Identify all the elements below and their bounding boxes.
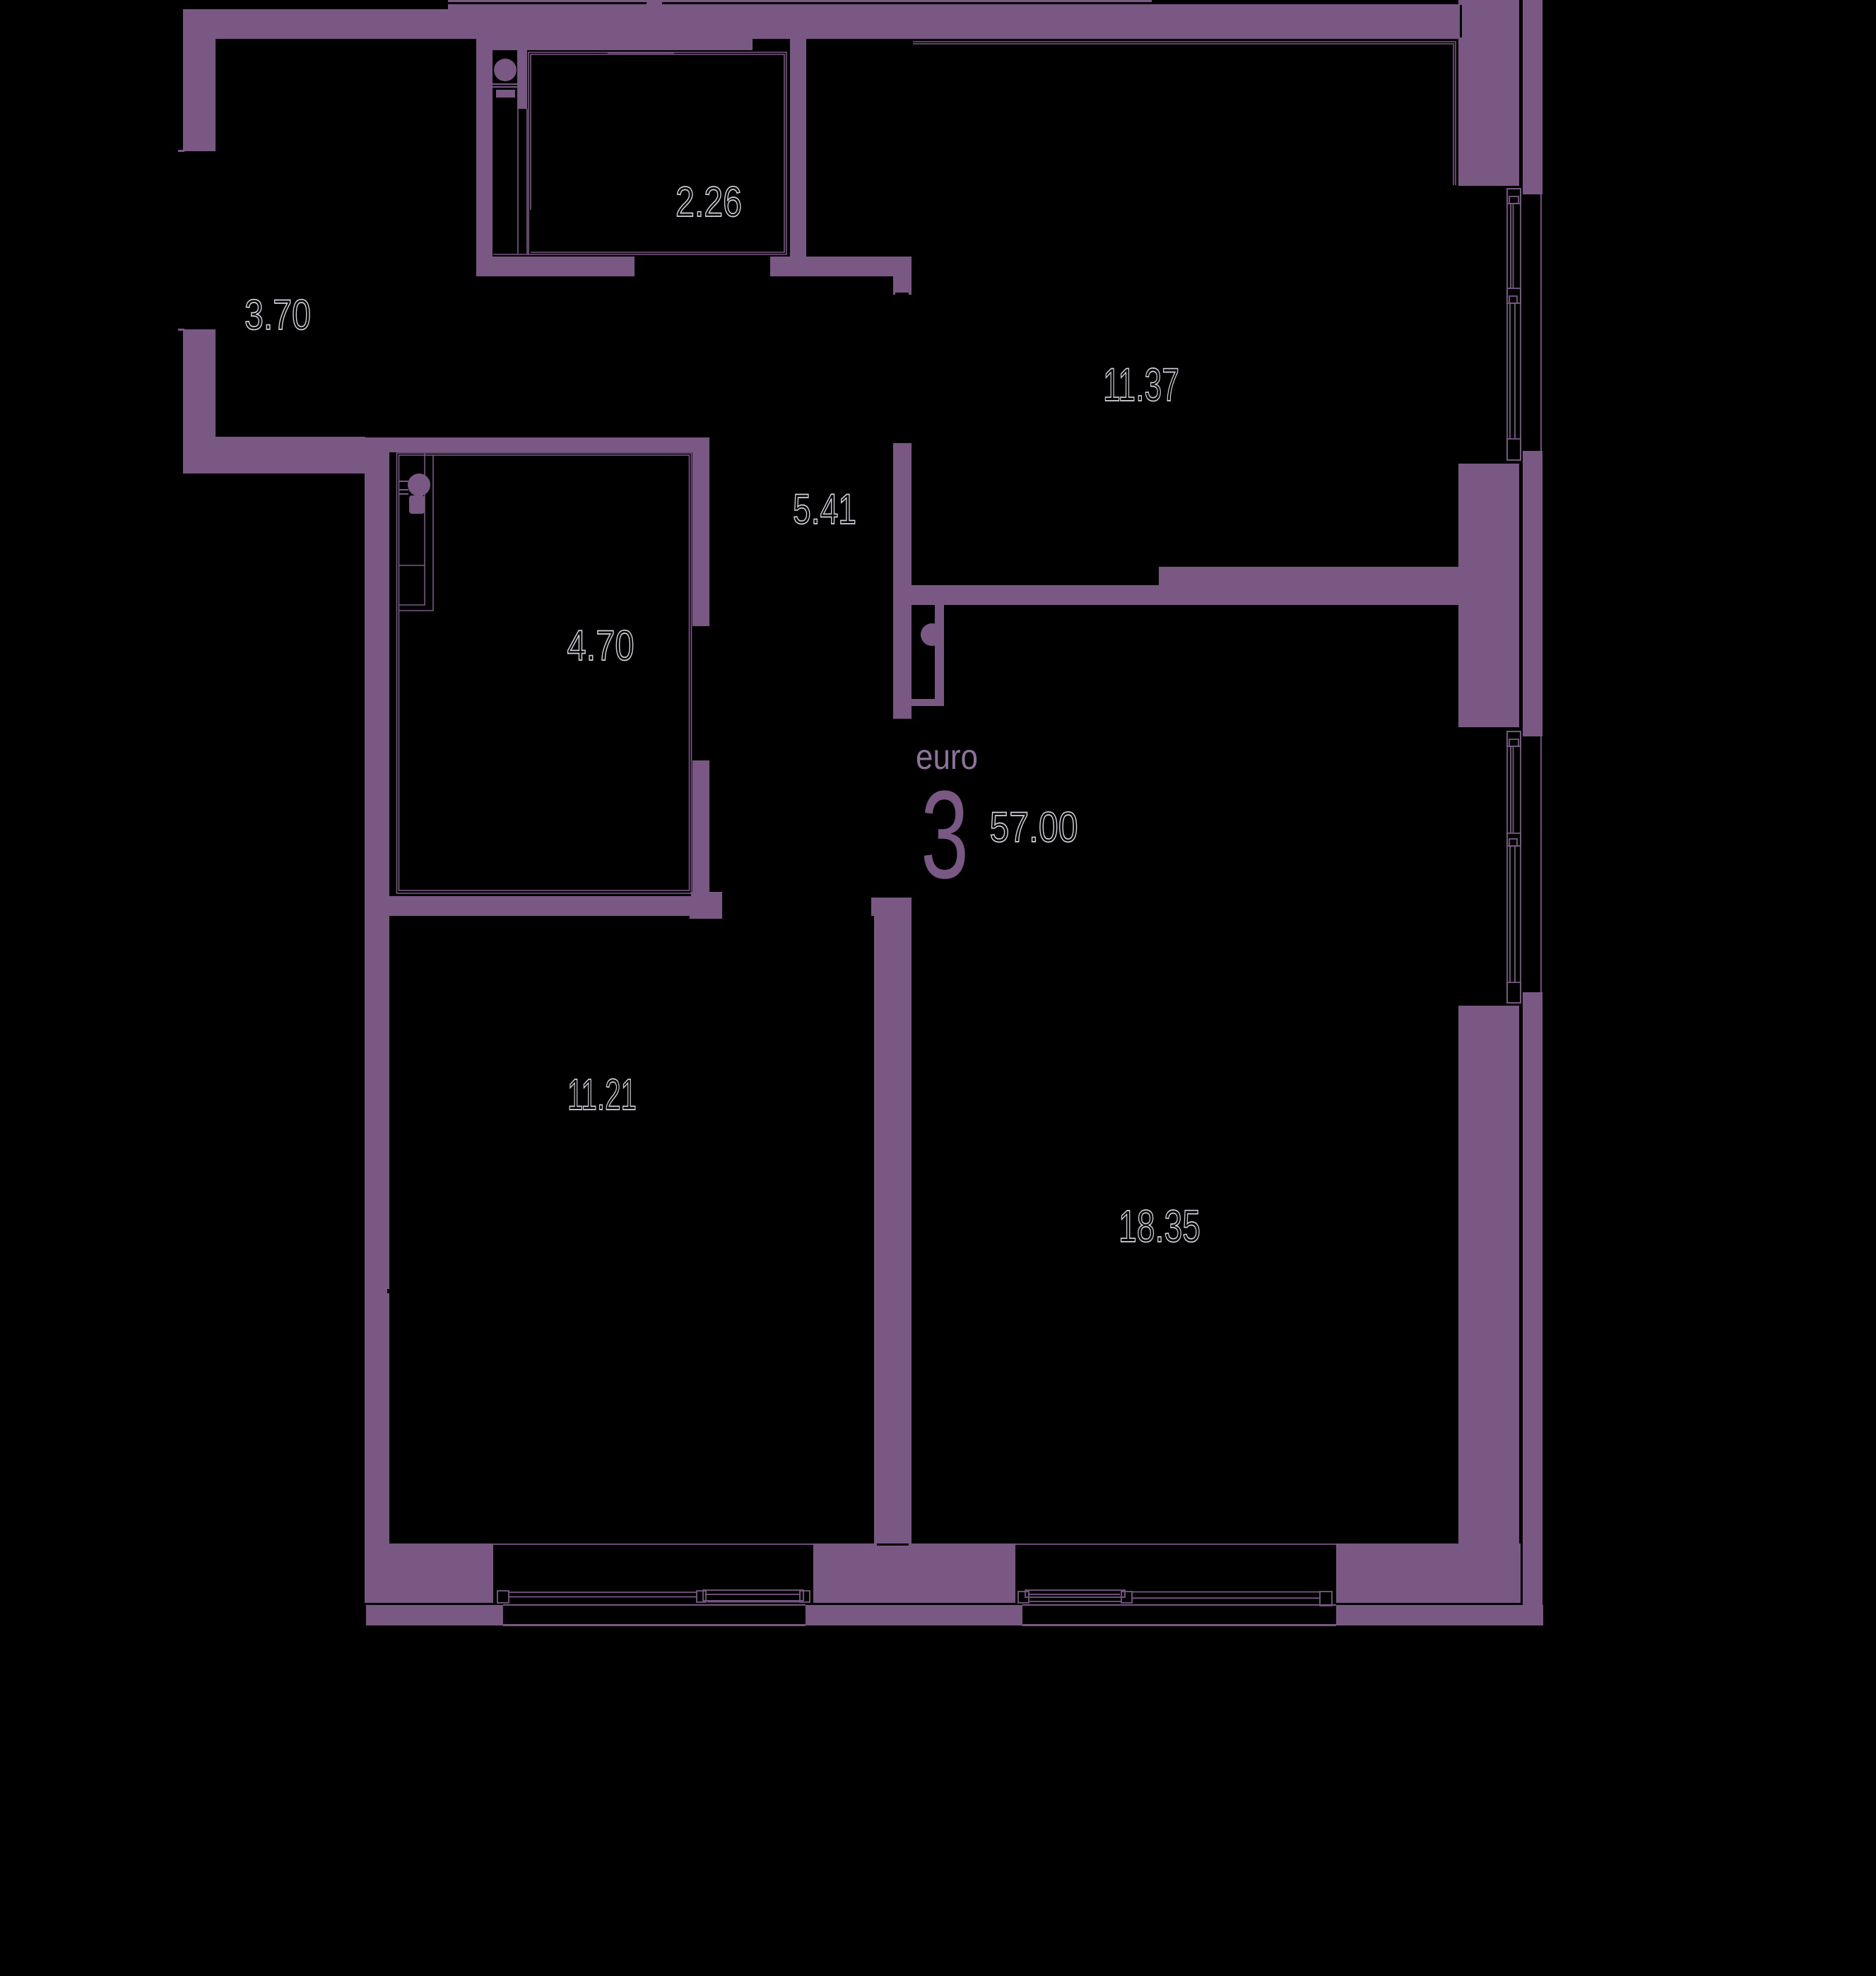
svg-text:11.21: 11.21	[567, 1071, 637, 1119]
svg-text:2.26: 2.26	[676, 178, 742, 225]
svg-text:11.37: 11.37	[1103, 358, 1179, 411]
svg-text:57.00: 57.00	[990, 804, 1078, 851]
svg-text:3.70: 3.70	[244, 291, 311, 339]
svg-text:5.41: 5.41	[793, 486, 856, 533]
svg-text:4.70: 4.70	[567, 622, 635, 669]
svg-text:3: 3	[921, 765, 969, 905]
svg-text:18.35: 18.35	[1119, 1201, 1200, 1252]
